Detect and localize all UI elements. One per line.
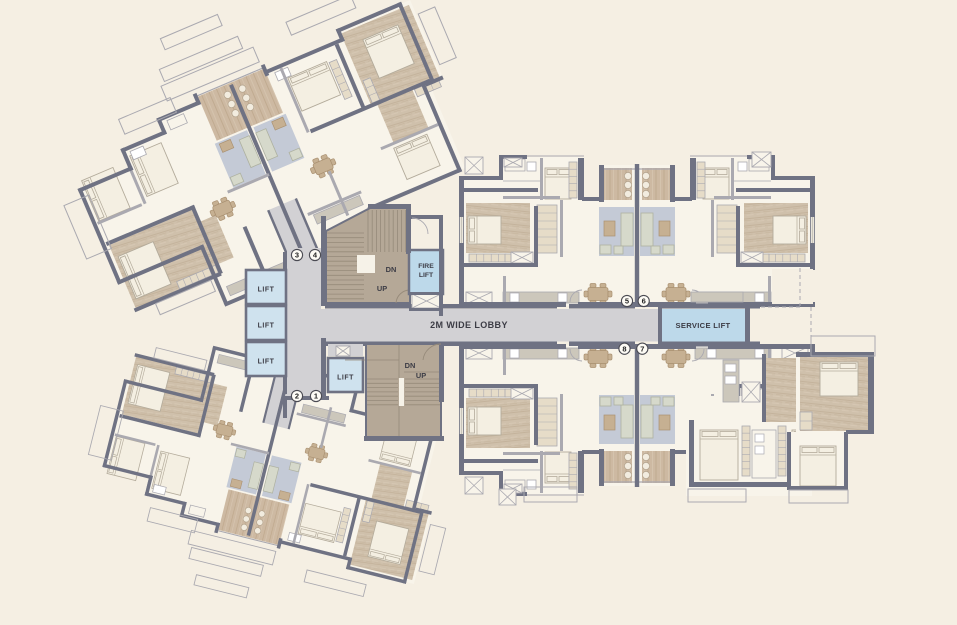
svg-text:FIRE: FIRE (418, 263, 434, 270)
svg-text:LIFT: LIFT (258, 323, 275, 330)
svg-text:LIFT: LIFT (337, 375, 354, 382)
svg-text:3: 3 (295, 251, 299, 260)
svg-text:7: 7 (640, 344, 644, 353)
svg-text:LIFT: LIFT (258, 359, 275, 366)
svg-text:8: 8 (622, 344, 626, 353)
svg-text:5: 5 (625, 297, 629, 306)
svg-text:DN: DN (386, 265, 397, 274)
svg-text:LIFT: LIFT (419, 272, 434, 279)
svg-text:LIFT: LIFT (258, 287, 275, 294)
svg-text:2: 2 (295, 392, 299, 401)
svg-text:2M WIDE LOBBY: 2M WIDE LOBBY (430, 320, 508, 330)
svg-text:1: 1 (314, 392, 318, 401)
svg-text:6: 6 (642, 297, 646, 306)
svg-text:UP: UP (377, 284, 387, 293)
svg-text:SERVICE LIFT: SERVICE LIFT (676, 321, 731, 330)
svg-text:DN: DN (405, 361, 416, 370)
svg-text:UP: UP (416, 371, 426, 380)
